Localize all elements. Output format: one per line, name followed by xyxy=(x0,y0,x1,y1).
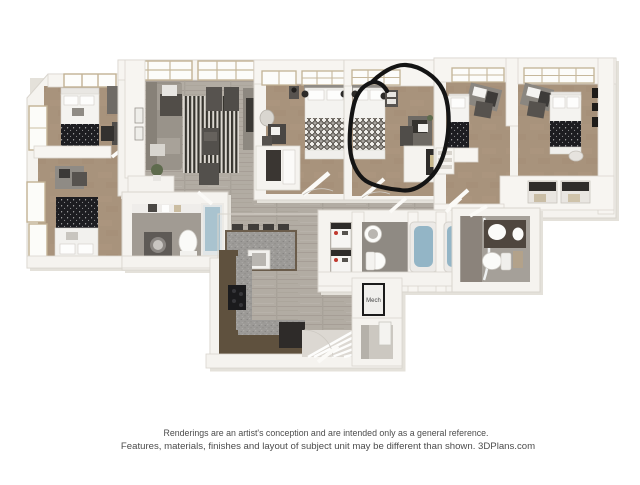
svg-text:Mech: Mech xyxy=(366,298,381,304)
